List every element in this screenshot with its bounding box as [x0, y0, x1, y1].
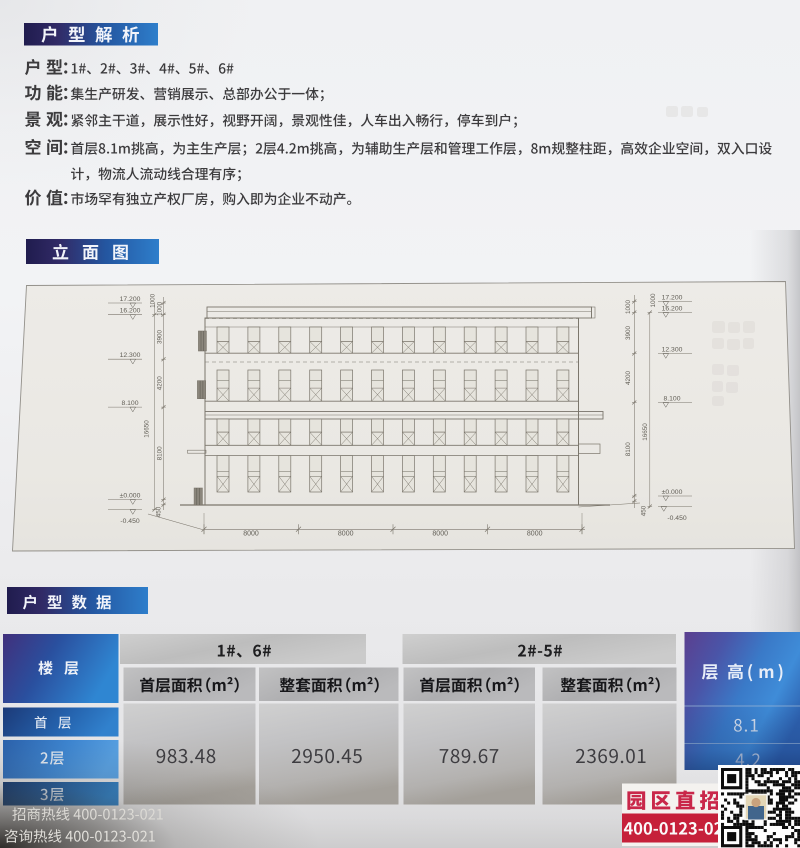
svg-text:16650: 16650 — [143, 420, 150, 438]
svg-text:12.300: 12.300 — [120, 352, 141, 359]
svg-text:1000: 1000 — [149, 293, 156, 308]
svg-text:8000: 8000 — [243, 531, 259, 538]
svg-text:8000: 8000 — [338, 531, 354, 538]
svg-text:8.100: 8.100 — [121, 400, 138, 407]
svg-text:8.100: 8.100 — [663, 396, 680, 403]
svg-text:8100: 8100 — [156, 446, 163, 461]
svg-text:1000: 1000 — [156, 301, 163, 316]
svg-text:8000: 8000 — [527, 531, 543, 538]
svg-text:4200: 4200 — [156, 376, 163, 391]
svg-text:8100: 8100 — [625, 442, 632, 457]
svg-text:17.200: 17.200 — [120, 296, 141, 303]
svg-text:1000: 1000 — [650, 293, 657, 308]
svg-text:450: 450 — [640, 505, 647, 516]
svg-text:-0.450: -0.450 — [120, 518, 139, 525]
svg-text:3900: 3900 — [625, 326, 632, 341]
svg-text:8000: 8000 — [432, 531, 448, 538]
svg-text:-0.450: -0.450 — [667, 515, 686, 522]
svg-text:3900: 3900 — [156, 330, 163, 345]
svg-text:4200: 4200 — [625, 371, 632, 386]
svg-text:±0.000: ±0.000 — [120, 493, 141, 500]
svg-text:1000: 1000 — [625, 300, 632, 315]
svg-text:16.200: 16.200 — [120, 308, 141, 315]
svg-text:17.200: 17.200 — [662, 295, 683, 302]
svg-text:16.200: 16.200 — [662, 306, 683, 313]
svg-text:16650: 16650 — [642, 423, 649, 441]
svg-text:±0.000: ±0.000 — [662, 489, 683, 496]
svg-text:12.300: 12.300 — [662, 347, 683, 354]
